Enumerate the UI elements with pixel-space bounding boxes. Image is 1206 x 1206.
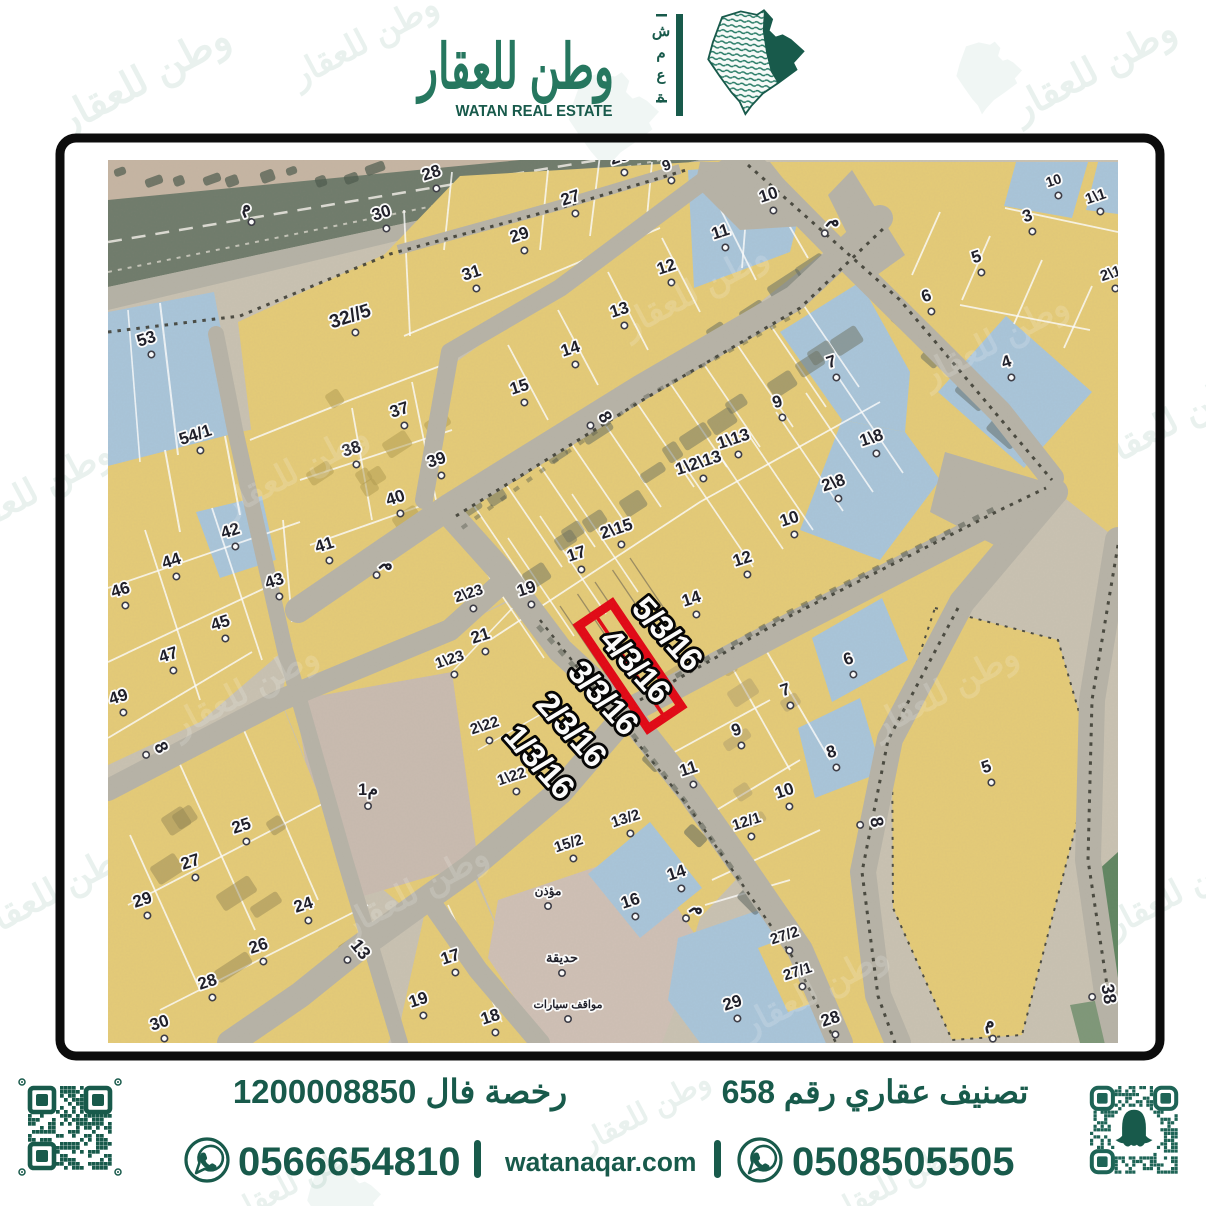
svg-text:0508505505: 0508505505 xyxy=(792,1140,1014,1184)
svg-text:وطن للعقار: وطن للعقار xyxy=(415,33,614,105)
svg-text:تصنيف عقاري رقم 658: تصنيف عقاري رقم 658 xyxy=(722,1074,1029,1112)
svg-text:ش: ش xyxy=(652,23,670,40)
svg-text:م: م xyxy=(656,45,665,62)
svg-text:WATAN REAL ESTATE: WATAN REAL ESTATE xyxy=(456,103,613,120)
svg-text:ة: ة xyxy=(657,89,665,106)
svg-text:watanaqar.com: watanaqar.com xyxy=(504,1147,696,1177)
svg-text:ع: ع xyxy=(657,67,667,84)
svg-text:0566654810: 0566654810 xyxy=(238,1140,460,1184)
svg-text:رخصة فال 1200008850: رخصة فال 1200008850 xyxy=(233,1073,567,1112)
